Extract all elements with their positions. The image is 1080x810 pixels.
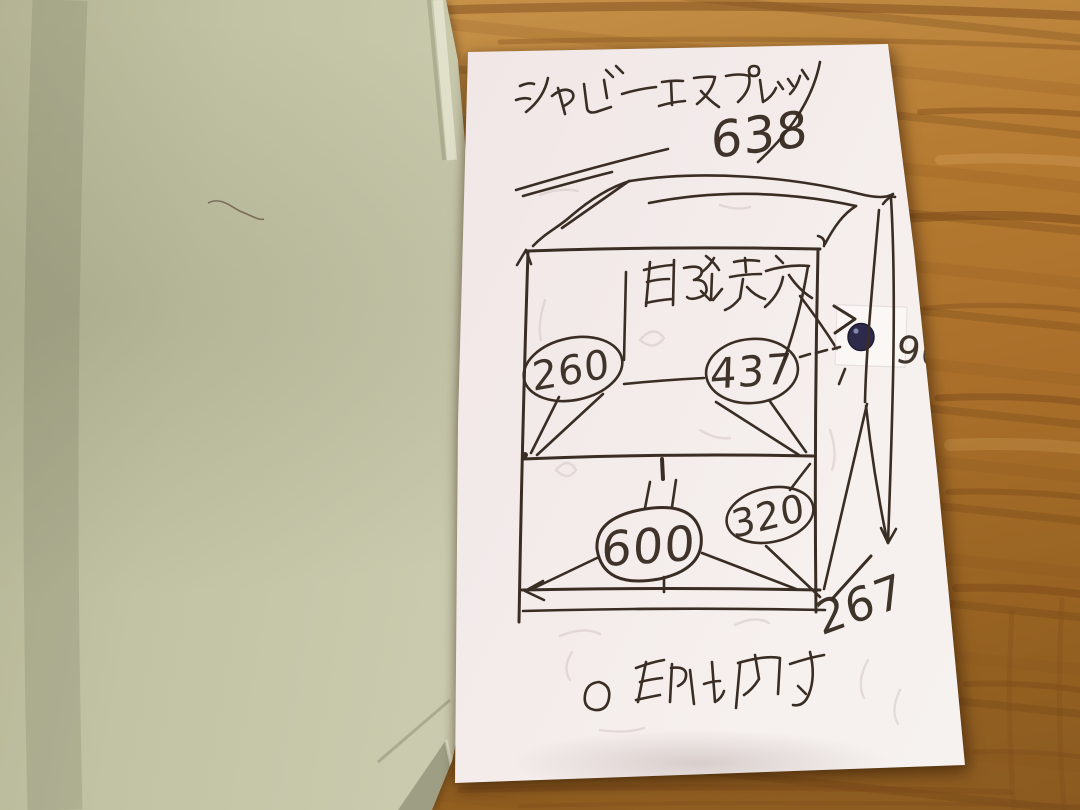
- dim-267: 267: [811, 563, 909, 647]
- right-dimension-lines: [824, 197, 896, 598]
- dim-638-leader: [516, 149, 668, 196]
- dim-638: 638: [710, 99, 809, 170]
- dashed-leader: [800, 347, 840, 357]
- note-paper-wrap: 638 260 437 600 320 900 267 シャビーエスプレッソ 配…: [0, 0, 1080, 810]
- dim-900: 900: [892, 327, 975, 378]
- leader-600-left: [532, 557, 599, 589]
- note-paper: 638 260 437 600 320 900 267 シャビーエスプレッソ 配…: [0, 0, 1080, 810]
- legend-scrawl-art: [585, 652, 824, 710]
- leader-260: [531, 394, 603, 455]
- dimension-numbers: 638 260 437 600 320 900 267: [530, 99, 975, 646]
- oval-connector-line: [624, 378, 704, 384]
- wiring-hole-label-scrawl: [644, 256, 837, 360]
- center-divider-nub: [662, 459, 663, 479]
- dim-320: 320: [728, 485, 807, 547]
- tick-marks: [645, 480, 676, 508]
- leader-437: [716, 400, 806, 455]
- photo-scene: 638 260 437 600 320 900 267 シャビーエスプレッソ 配…: [0, 0, 1080, 810]
- dim-437: 437: [709, 344, 794, 399]
- small-tick: [839, 369, 845, 384]
- handwritten-sketch: 638 260 437 600 320 900 267: [0, 0, 1080, 810]
- dim-600: 600: [600, 516, 696, 579]
- ink-dot-highlight: [853, 328, 858, 333]
